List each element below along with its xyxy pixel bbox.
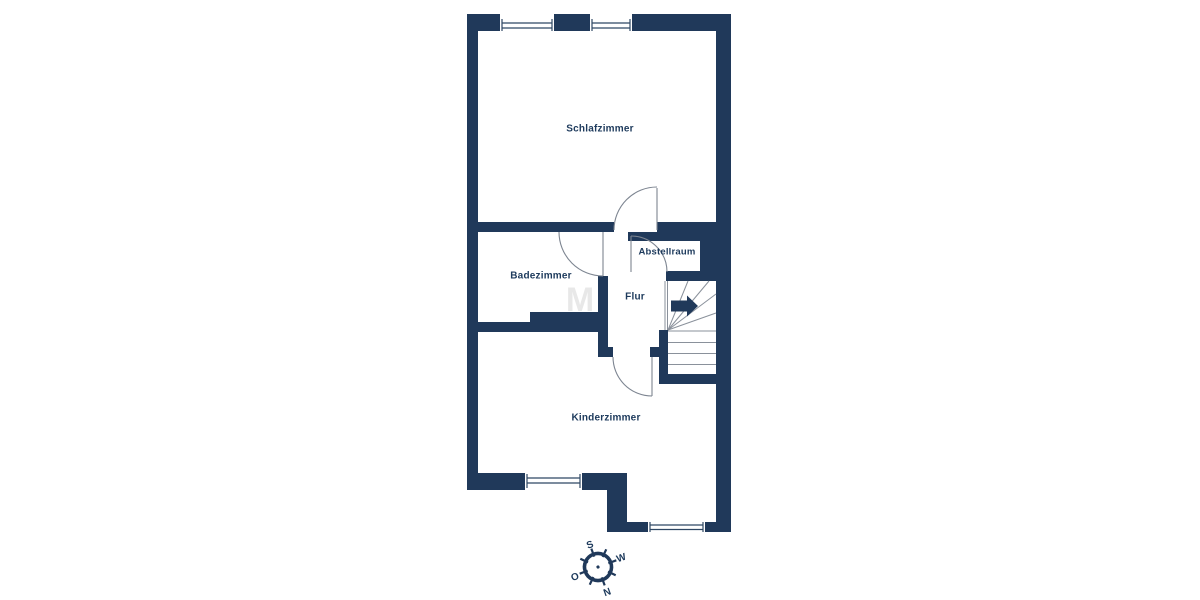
window-bottom-right: [650, 522, 703, 532]
window-bottom-left: [527, 474, 580, 488]
compass-east-label: O: [570, 571, 581, 584]
room-label-kinderzimmer: Kinderzimmer: [571, 413, 640, 424]
plan-linework: S N O W: [0, 0, 1200, 600]
room-label-flur: Flur: [625, 292, 645, 303]
watermark: M: [566, 283, 594, 317]
room-label-badezimmer: Badezimmer: [510, 271, 571, 282]
compass-rose-icon: S N O W: [561, 530, 638, 600]
floor-plan: S N O W Schlafzimmer Badezimmer Abstellr…: [0, 0, 1200, 600]
compass-south-label: S: [585, 539, 595, 552]
door-childrens-room: [613, 357, 652, 396]
room-label-schlafzimmer: Schlafzimmer: [566, 124, 633, 135]
window-top-1: [502, 19, 552, 31]
door-bedroom: [614, 187, 657, 230]
room-label-abstellraum: Abstellraum: [638, 247, 695, 258]
staircase: [665, 281, 716, 365]
compass-west-label: W: [615, 551, 628, 565]
door-bathroom: [559, 232, 603, 276]
compass-north-label: N: [602, 586, 613, 599]
window-top-2: [592, 19, 630, 31]
